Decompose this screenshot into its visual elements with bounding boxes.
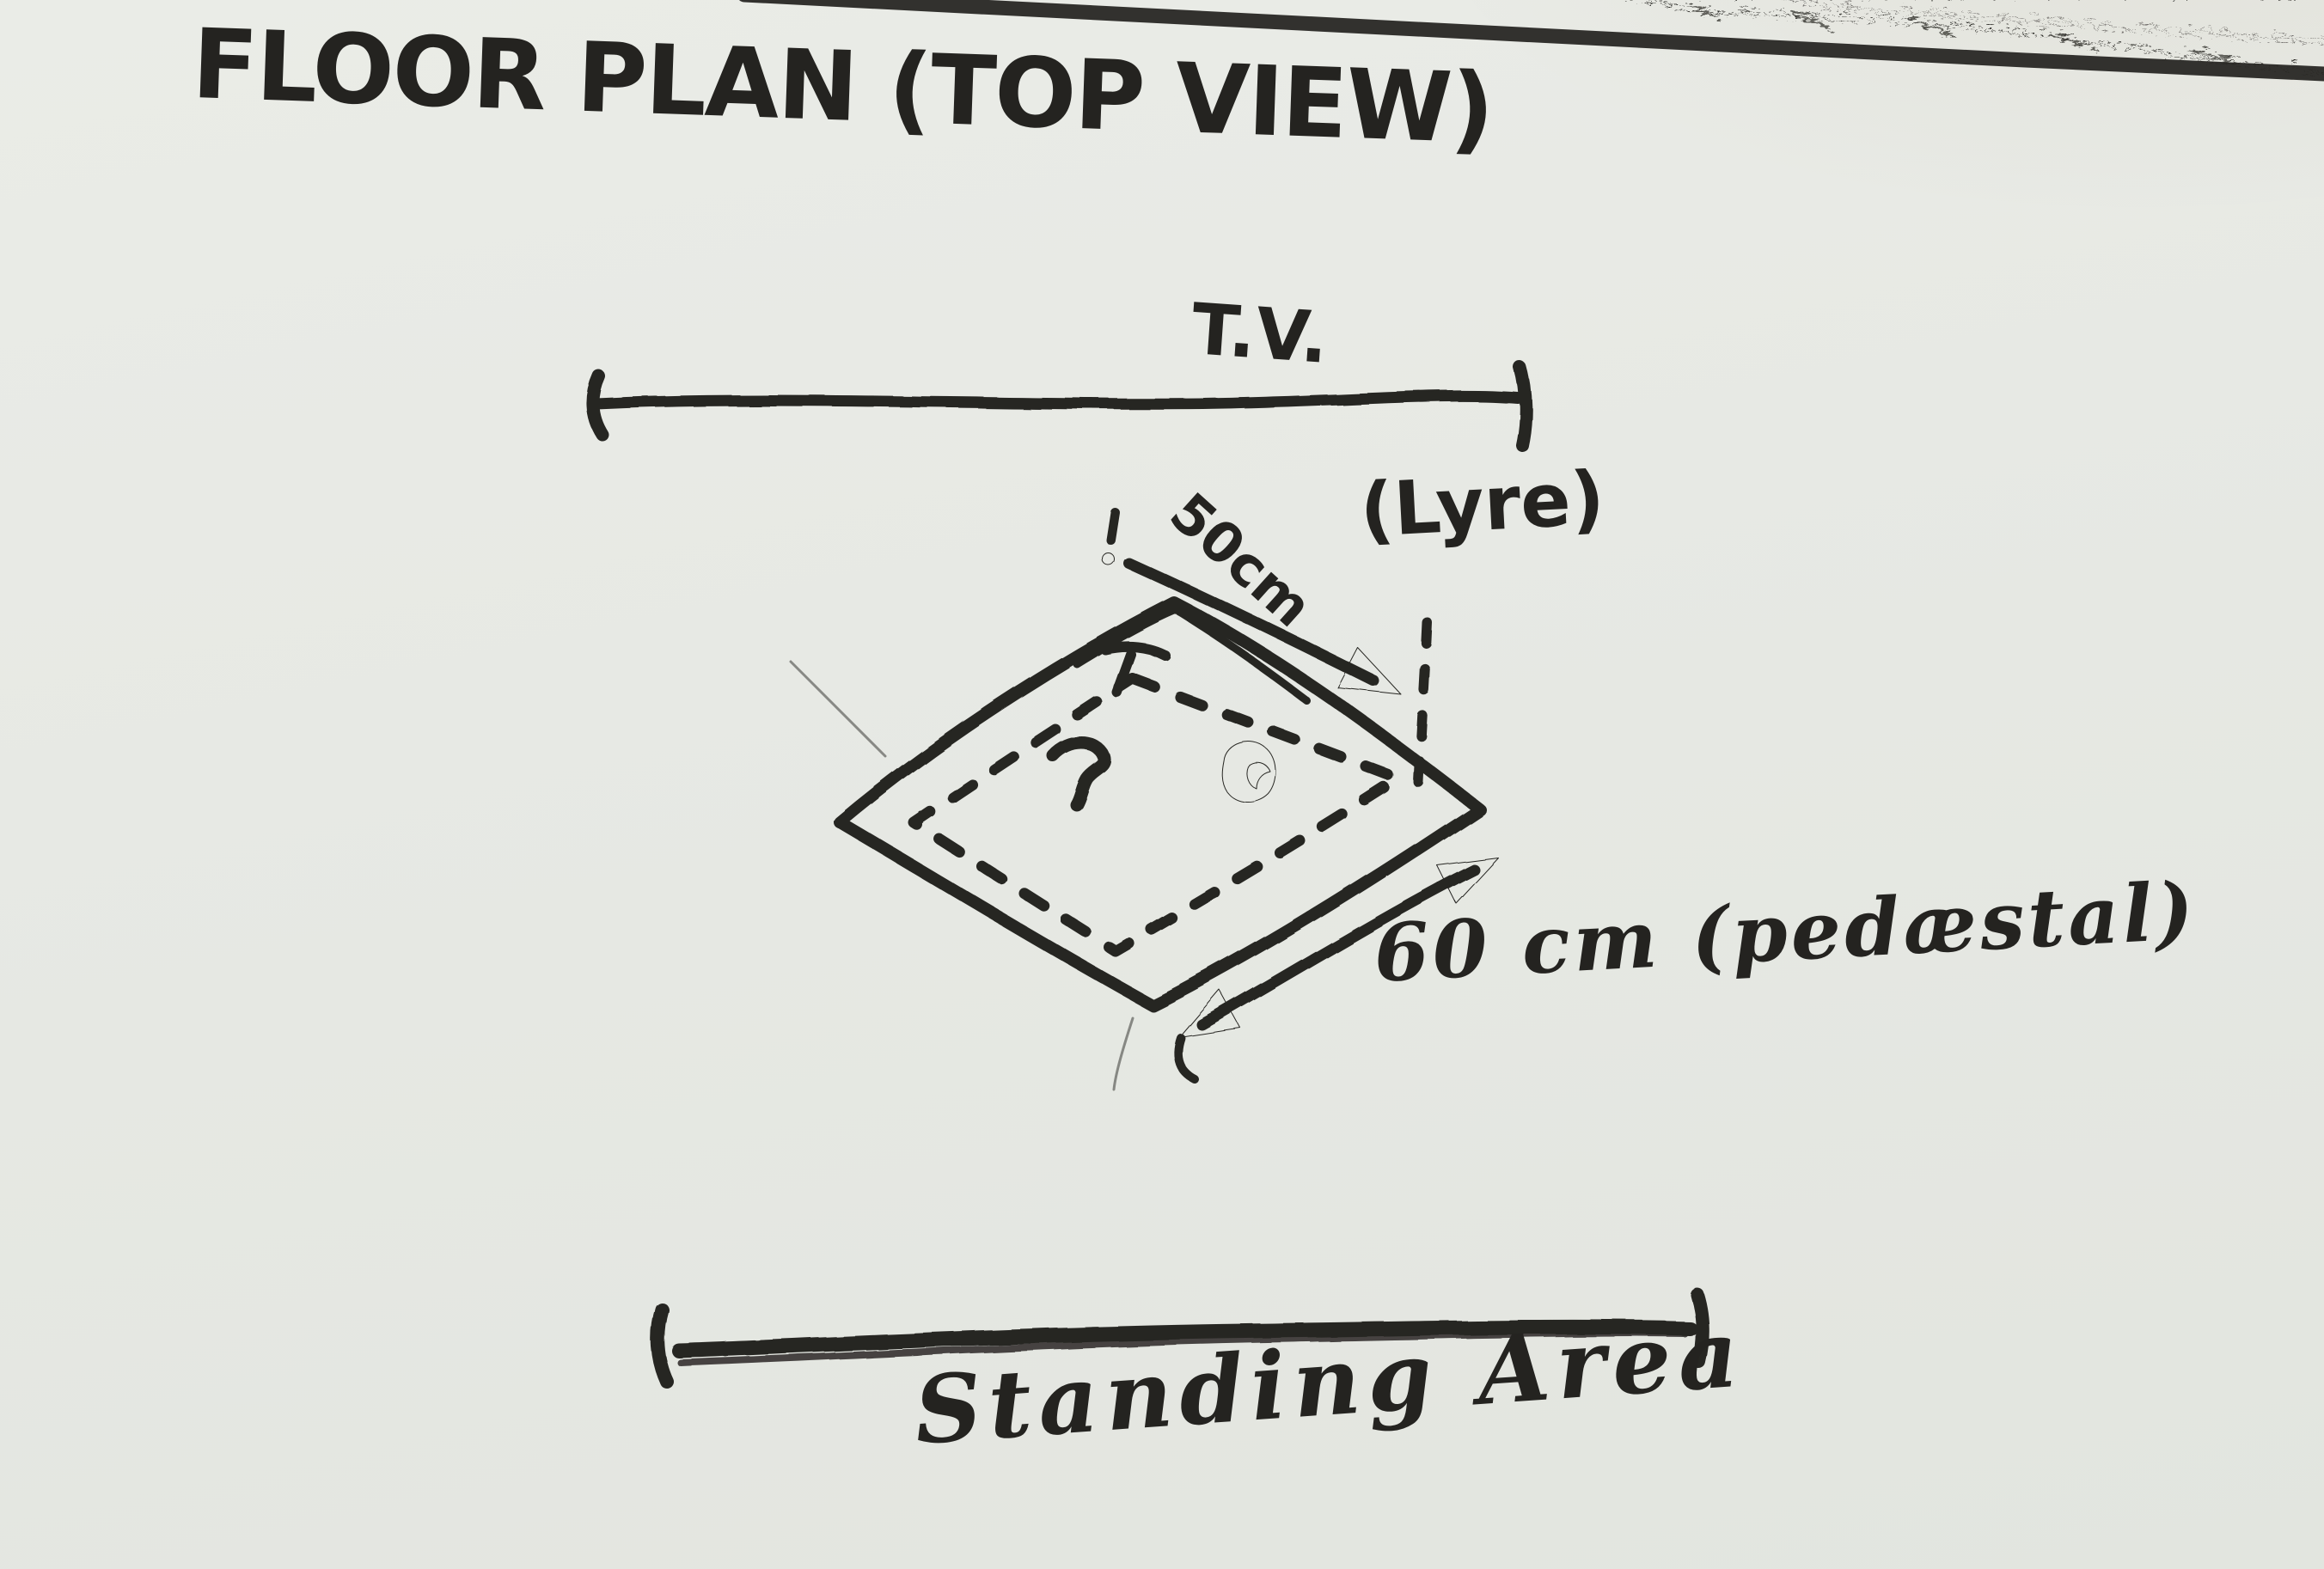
lyre-arrow-start-tick xyxy=(1110,512,1115,540)
scratch-mark xyxy=(791,662,885,756)
tv-line-right-tick xyxy=(1520,368,1526,445)
lyre-arrow-start-dot xyxy=(1102,553,1114,565)
scratch-mark xyxy=(1114,1018,1133,1090)
lyre-foot-marks xyxy=(1054,742,1276,804)
sketch-layer xyxy=(0,0,2324,1569)
paper-sheet: FLOOR PLAN (TOP VIEW) T.V. 50cm (Lyre) 6… xyxy=(0,0,2324,1569)
tv-label: T.V. xyxy=(1189,289,1330,380)
lyre-foot-mark-left xyxy=(1054,743,1104,804)
tv-line xyxy=(596,396,1518,404)
lyre-foot-mark-right-notch xyxy=(1246,763,1270,789)
tv-dimension-line xyxy=(593,368,1526,445)
lyre-label: (Lyre) xyxy=(1358,455,1606,554)
pedestal-arrow-lower-flick xyxy=(1178,1038,1195,1079)
standing-left-tick xyxy=(657,1310,667,1382)
